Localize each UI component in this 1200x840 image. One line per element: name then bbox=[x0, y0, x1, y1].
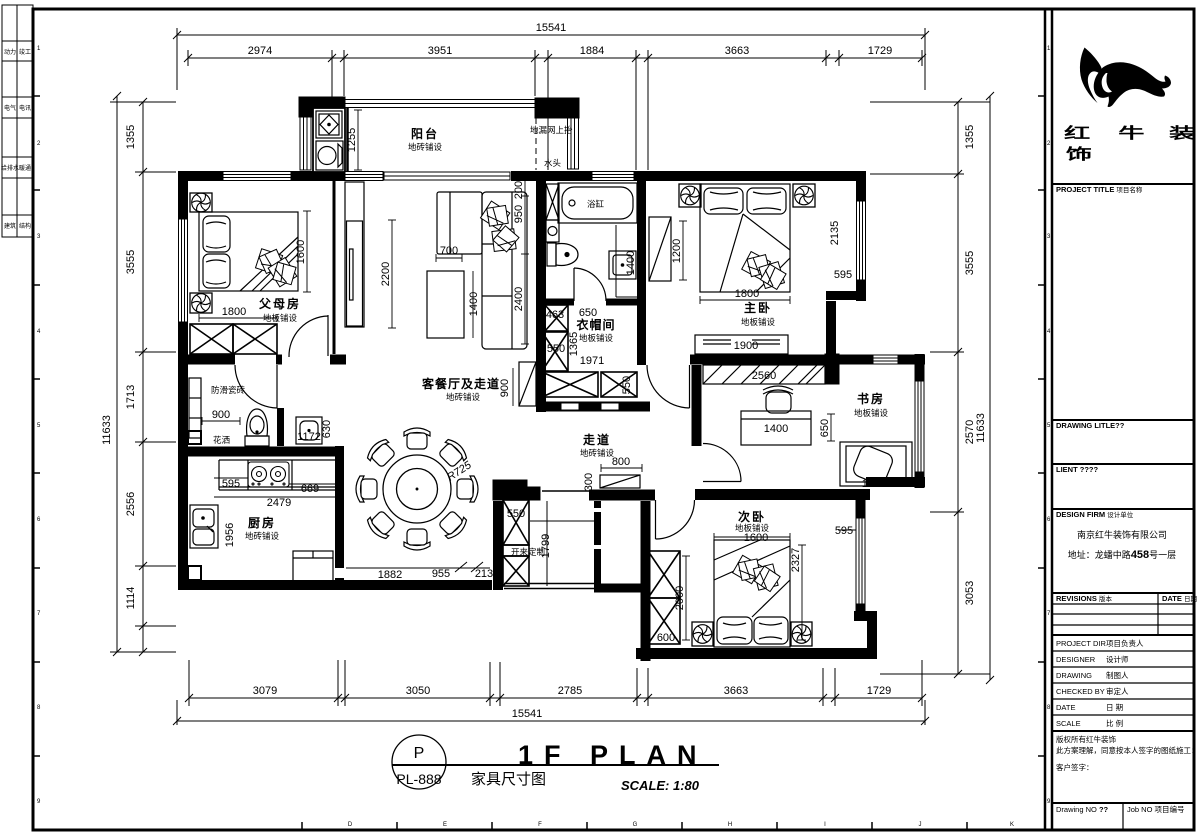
svg-text:地砖铺设: 地砖铺设 bbox=[580, 448, 615, 458]
svg-text:暖通: 暖通 bbox=[19, 164, 31, 172]
svg-text:DRAWING LITLE??: DRAWING LITLE?? bbox=[1056, 421, 1125, 430]
svg-text:电气: 电气 bbox=[4, 104, 16, 112]
svg-text:900: 900 bbox=[499, 379, 511, 397]
svg-text:DESIGN FIRM 设计单位: DESIGN FIRM 设计单位 bbox=[1056, 510, 1134, 519]
svg-text:次卧: 次卧 bbox=[738, 509, 766, 524]
svg-text:地砖铺设: 地砖铺设 bbox=[446, 392, 481, 402]
svg-text:给排水: 给排水 bbox=[1, 164, 19, 172]
svg-text:D: D bbox=[348, 822, 353, 828]
svg-text:家具尺寸图: 家具尺寸图 bbox=[471, 771, 546, 788]
svg-text:550: 550 bbox=[507, 508, 525, 520]
svg-text:3053: 3053 bbox=[964, 581, 976, 605]
svg-text:牛: 牛 bbox=[1118, 124, 1144, 142]
svg-text:11633: 11633 bbox=[975, 413, 987, 443]
svg-text:1729: 1729 bbox=[867, 685, 891, 697]
svg-text:15541: 15541 bbox=[512, 708, 543, 720]
svg-text:水头: 水头 bbox=[544, 158, 562, 168]
svg-text:建筑: 建筑 bbox=[4, 222, 16, 230]
svg-text:PROJECT TITLE 项目名称: PROJECT TITLE 项目名称 bbox=[1056, 185, 1143, 194]
svg-text:项目负责人: 项目负责人 bbox=[1106, 638, 1144, 648]
svg-text:主卧: 主卧 bbox=[744, 300, 772, 315]
svg-text:厨房: 厨房 bbox=[248, 515, 276, 530]
svg-text:1713: 1713 bbox=[125, 385, 137, 409]
svg-text:地板铺设: 地板铺设 bbox=[579, 333, 614, 343]
svg-text:SCALE: 1:80: SCALE: 1:80 bbox=[621, 778, 700, 793]
svg-text:2560: 2560 bbox=[752, 370, 776, 382]
svg-text:650: 650 bbox=[819, 419, 831, 437]
svg-text:1900: 1900 bbox=[734, 340, 758, 352]
svg-text:衣帽间: 衣帽间 bbox=[576, 317, 615, 332]
svg-text:1400: 1400 bbox=[468, 292, 480, 316]
svg-text:2200: 2200 bbox=[380, 262, 392, 286]
svg-text:阳台: 阳台 bbox=[411, 126, 439, 141]
svg-text:1400: 1400 bbox=[764, 423, 788, 435]
svg-text:1800: 1800 bbox=[735, 288, 759, 300]
svg-text:3555: 3555 bbox=[964, 251, 976, 275]
svg-text:红: 红 bbox=[1064, 124, 1090, 142]
svg-text:G: G bbox=[633, 822, 638, 828]
svg-text:2400: 2400 bbox=[513, 287, 525, 311]
svg-text:DATE 日期: DATE 日期 bbox=[1162, 594, 1197, 603]
svg-text:800: 800 bbox=[612, 456, 630, 468]
svg-text:1884: 1884 bbox=[580, 45, 604, 57]
svg-text:2000: 2000 bbox=[674, 586, 686, 610]
svg-text:3663: 3663 bbox=[724, 685, 748, 697]
svg-text:669: 669 bbox=[301, 483, 319, 495]
svg-text:1799: 1799 bbox=[540, 534, 552, 558]
svg-text:3079: 3079 bbox=[253, 685, 277, 697]
svg-text:K: K bbox=[1010, 822, 1014, 828]
svg-text:CHECKED BY: CHECKED BY bbox=[1056, 687, 1105, 696]
svg-text:550: 550 bbox=[547, 343, 565, 355]
svg-text:E: E bbox=[443, 822, 447, 828]
svg-text:1882: 1882 bbox=[378, 569, 402, 581]
svg-text:LIENT ????: LIENT ???? bbox=[1056, 465, 1098, 474]
svg-text:2974: 2974 bbox=[248, 45, 272, 57]
svg-text:客户签字：: 客户签字： bbox=[1056, 762, 1094, 772]
svg-text:1500: 1500 bbox=[862, 478, 886, 490]
svg-text:走道: 走道 bbox=[583, 432, 611, 447]
svg-text:Job NO 项目编号: Job NO 项目编号 bbox=[1127, 804, 1185, 814]
svg-text:花洒: 花洒 bbox=[213, 435, 231, 445]
svg-text:955: 955 bbox=[432, 568, 450, 580]
svg-text:600: 600 bbox=[657, 632, 675, 644]
svg-text:日 期: 日 期 bbox=[1106, 703, 1123, 712]
svg-text:F: F bbox=[538, 822, 542, 828]
svg-text:防滑瓷砖: 防滑瓷砖 bbox=[211, 385, 246, 395]
svg-text:DRAWING: DRAWING bbox=[1056, 671, 1092, 680]
svg-text:2785: 2785 bbox=[558, 685, 582, 697]
svg-text:950: 950 bbox=[513, 205, 525, 223]
svg-text:1800: 1800 bbox=[222, 306, 246, 318]
svg-text:1172: 1172 bbox=[297, 431, 321, 443]
svg-text:1255: 1255 bbox=[346, 128, 358, 152]
svg-text:DATE: DATE bbox=[1056, 703, 1075, 712]
svg-text:H: H bbox=[728, 822, 732, 828]
svg-text:J: J bbox=[919, 822, 922, 828]
svg-text:电讯: 电讯 bbox=[19, 104, 31, 112]
svg-text:2556: 2556 bbox=[125, 492, 137, 516]
svg-text:PROJECT DIR: PROJECT DIR bbox=[1056, 639, 1106, 648]
svg-text:2327: 2327 bbox=[790, 548, 802, 572]
svg-text:200: 200 bbox=[513, 181, 525, 199]
svg-text:竣工: 竣工 bbox=[19, 48, 31, 56]
svg-text:3050: 3050 bbox=[406, 685, 430, 697]
svg-text:审定人: 审定人 bbox=[1106, 686, 1129, 696]
svg-text:1971: 1971 bbox=[580, 355, 604, 367]
svg-text:630: 630 bbox=[321, 420, 333, 438]
svg-text:1200: 1200 bbox=[671, 239, 683, 263]
svg-text:2135: 2135 bbox=[829, 221, 841, 245]
svg-text:此方案理解，同意按本人签字的图纸施工：: 此方案理解，同意按本人签字的图纸施工： bbox=[1056, 745, 1199, 755]
svg-text:南京红牛装饰有限公司: 南京红牛装饰有限公司 bbox=[1077, 529, 1167, 540]
svg-text:595: 595 bbox=[835, 525, 853, 537]
svg-text:15541: 15541 bbox=[536, 22, 567, 34]
svg-text:1355: 1355 bbox=[125, 125, 137, 149]
svg-text:动力: 动力 bbox=[4, 48, 16, 56]
svg-text:父母房: 父母房 bbox=[258, 296, 301, 311]
svg-text:900: 900 bbox=[212, 409, 230, 421]
svg-text:1F PLAN: 1F PLAN bbox=[518, 740, 708, 770]
svg-text:地板铺设: 地板铺设 bbox=[854, 408, 889, 418]
svg-text:1355: 1355 bbox=[964, 125, 976, 149]
svg-text:书房: 书房 bbox=[857, 391, 885, 406]
svg-text:地漏网上抬: 地漏网上抬 bbox=[530, 125, 573, 135]
svg-text:浴缸: 浴缸 bbox=[587, 199, 605, 209]
svg-text:1729: 1729 bbox=[868, 45, 892, 57]
svg-text:Drawing NO ??: Drawing NO ?? bbox=[1056, 805, 1109, 814]
svg-text:1400: 1400 bbox=[625, 251, 637, 275]
svg-text:3951: 3951 bbox=[428, 45, 452, 57]
svg-text:饰: 饰 bbox=[1066, 145, 1092, 163]
svg-text:700: 700 bbox=[440, 245, 458, 257]
svg-text:结构: 结构 bbox=[19, 222, 31, 230]
svg-text:地板铺设: 地板铺设 bbox=[741, 317, 776, 327]
svg-text:PL-888: PL-888 bbox=[396, 771, 441, 787]
svg-text:550: 550 bbox=[621, 376, 633, 394]
svg-text:1600: 1600 bbox=[295, 240, 307, 264]
svg-text:3663: 3663 bbox=[725, 45, 749, 57]
svg-text:595: 595 bbox=[222, 478, 240, 490]
svg-text:地砖铺设: 地砖铺设 bbox=[245, 531, 280, 541]
svg-text:设计师: 设计师 bbox=[1106, 654, 1129, 664]
svg-text:装: 装 bbox=[1169, 125, 1196, 142]
svg-text:P: P bbox=[414, 745, 425, 762]
svg-text:版权所有红牛装饰: 版权所有红牛装饰 bbox=[1056, 734, 1116, 744]
svg-text:1956: 1956 bbox=[224, 523, 236, 547]
svg-text:300: 300 bbox=[583, 473, 595, 491]
svg-text:地址：龙蟠中路458号一层: 地址：龙蟠中路458号一层 bbox=[1068, 549, 1176, 561]
svg-text:1114: 1114 bbox=[125, 587, 137, 610]
svg-text:客餐厅及走道: 客餐厅及走道 bbox=[421, 376, 500, 391]
svg-text:595: 595 bbox=[834, 269, 852, 281]
svg-text:11633: 11633 bbox=[101, 415, 113, 445]
svg-text:3555: 3555 bbox=[125, 250, 137, 274]
svg-text:213: 213 bbox=[475, 568, 493, 580]
svg-text:DESIGNER: DESIGNER bbox=[1056, 655, 1096, 664]
svg-text:SCALE: SCALE bbox=[1056, 719, 1081, 728]
svg-text:地砖铺设: 地砖铺设 bbox=[408, 142, 443, 152]
svg-text:1600: 1600 bbox=[744, 532, 768, 544]
svg-text:2479: 2479 bbox=[267, 497, 291, 509]
svg-text:463: 463 bbox=[546, 309, 564, 321]
svg-text:比 例: 比 例 bbox=[1106, 718, 1123, 728]
svg-text:制图人: 制图人 bbox=[1106, 670, 1129, 680]
svg-text:REVISIONS 版本: REVISIONS 版本 bbox=[1056, 594, 1112, 603]
